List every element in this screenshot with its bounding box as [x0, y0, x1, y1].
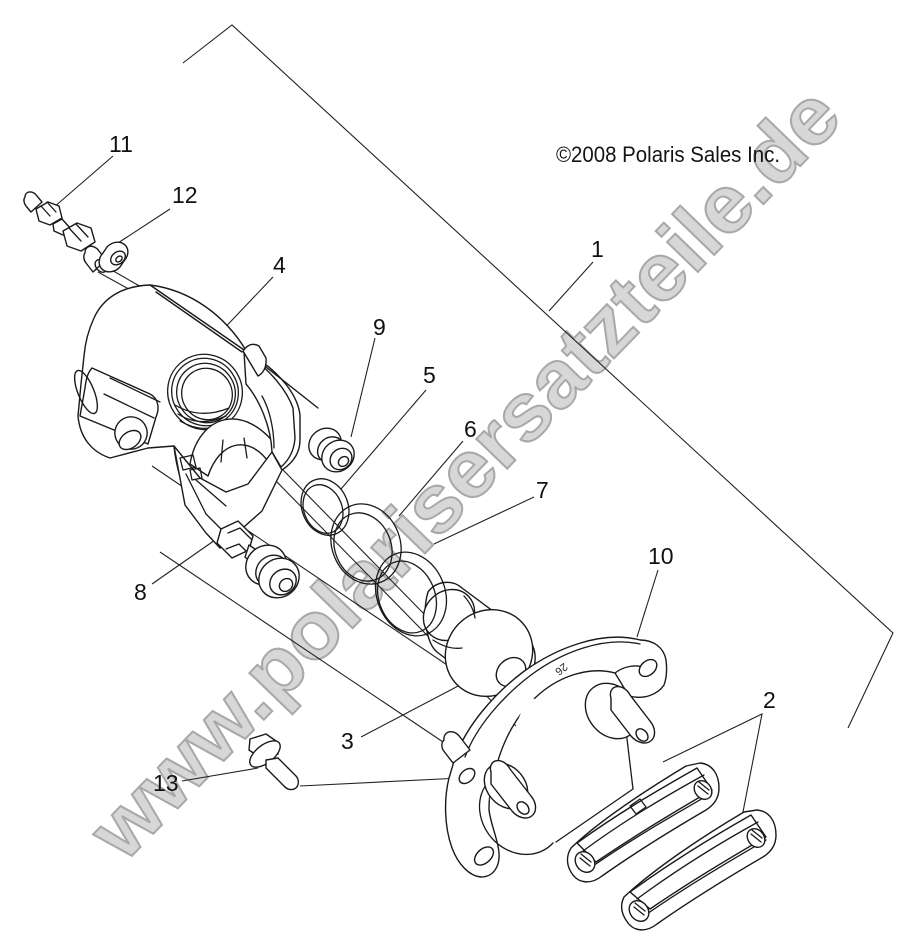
svg-text:1: 1 [591, 236, 604, 262]
svg-text:11: 11 [109, 131, 133, 157]
svg-text:3: 3 [341, 728, 354, 754]
svg-text:2: 2 [763, 687, 776, 713]
svg-text:©2008 Polaris Sales Inc.: ©2008 Polaris Sales Inc. [556, 142, 780, 167]
svg-text:5: 5 [423, 362, 436, 388]
svg-text:4: 4 [273, 252, 286, 278]
svg-text:7: 7 [536, 477, 549, 503]
svg-text:9: 9 [373, 314, 386, 340]
svg-text:6: 6 [464, 416, 477, 442]
svg-text:10: 10 [648, 543, 674, 569]
svg-text:13: 13 [153, 770, 179, 796]
svg-text:8: 8 [134, 579, 147, 605]
svg-text:12: 12 [172, 182, 198, 208]
